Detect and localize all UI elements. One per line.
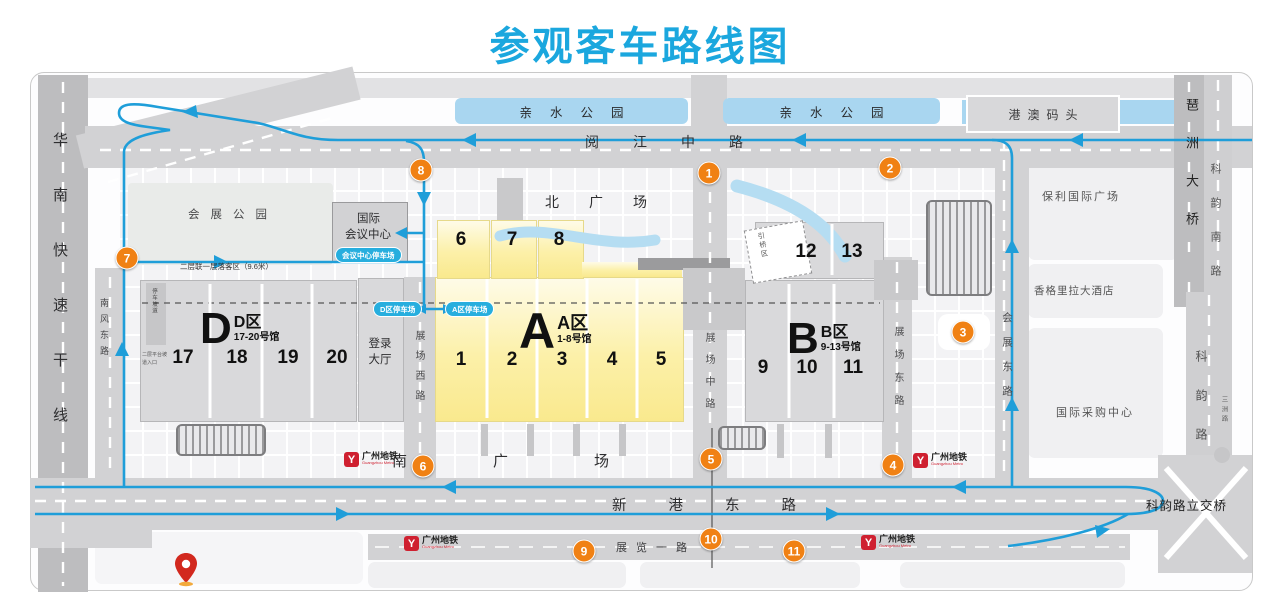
road-label-zhanchang-east: 展场东路	[890, 326, 905, 418]
road-label-zhanlan-yi: 展览一路	[616, 539, 696, 555]
road-label-nanfeng-east: 南风东路	[98, 298, 111, 362]
metro-logo-4: Y 广州地铁Guangzhou Metro	[861, 535, 915, 550]
qinshui-park-label-2: 亲水公园	[779, 102, 901, 121]
place-label-poly-plaza: 保利国际广场	[1042, 188, 1120, 204]
south-stub-6	[825, 424, 832, 458]
b-east-arm	[874, 260, 918, 300]
guangzhou-metro-icon: Y	[404, 536, 419, 551]
zone-label-b: B B区 9-13号馆	[787, 320, 861, 357]
route-marker-9: 9	[573, 540, 596, 563]
place-label-south-plaza: 南广场	[392, 450, 695, 471]
hall-2: 2	[507, 349, 518, 371]
route-marker-5: 5	[700, 448, 723, 471]
road-label-huizhan-east: 会展东路	[1000, 312, 1015, 410]
ramp-bar-label: 停车坡道	[150, 288, 158, 314]
metro-logo-3: Y 广州地铁Guangzhou Metro	[404, 536, 458, 551]
south-block-1	[368, 562, 626, 588]
road-label-xingang: 新港东路	[612, 494, 838, 515]
route-marker-6: 6	[412, 455, 435, 478]
conference-parking-pill: 会议中心停车场	[336, 248, 401, 262]
zone-d-range: 17-20号馆	[234, 332, 280, 343]
southwest-road-stub	[30, 528, 152, 548]
zone-a-name: A区	[557, 314, 591, 334]
hall-11: 11	[843, 357, 863, 379]
waterfront-strip-1: 亲水公园	[455, 98, 688, 124]
bus-park-west	[176, 424, 266, 456]
login-hall-label: 登录大厅	[365, 336, 395, 368]
hall-19: 19	[277, 347, 298, 369]
metro-logo-2: Y 广州地铁Guangzhou Metro	[913, 453, 967, 468]
poly-plaza-block	[1028, 163, 1178, 260]
route-marker-10: 10	[700, 528, 723, 551]
hall-10: 10	[796, 357, 817, 379]
hall-5: 5	[656, 349, 667, 371]
hall-8: 8	[554, 229, 565, 251]
gangao-pier-box: 港澳码头	[966, 95, 1120, 133]
waterfront-strip-2: 亲水公园	[723, 98, 940, 124]
qinshui-park-label-1: 亲水公园	[519, 102, 641, 121]
route-marker-3: 3	[952, 321, 975, 344]
hall-1: 1	[456, 349, 467, 371]
central-connector	[683, 268, 745, 330]
road-label-pazhou-bridge: 琶洲大桥	[1182, 98, 1201, 250]
hall-9: 9	[758, 357, 769, 379]
sourcing-center-block	[1028, 328, 1163, 458]
conference-center-label-1: 国际	[357, 210, 380, 226]
bus-park-east	[926, 200, 992, 296]
road-label-keyun: 科韵路	[1193, 350, 1210, 467]
ramp-small-label: 二层平台坡道入口	[142, 352, 170, 367]
a-zone-parking-pill: A区停车场	[446, 302, 493, 316]
south-stub-5	[777, 424, 784, 458]
route-marker-7: 7	[116, 247, 139, 270]
place-label-north-plaza: 北广场	[545, 192, 677, 212]
road-label-keyun-south: 科韵南路	[1207, 163, 1223, 299]
huizhan-park-block	[128, 183, 333, 265]
zone-d-name: D区	[234, 314, 280, 332]
place-label-sourcing-center: 国际采购中心	[1056, 404, 1134, 420]
conference-center-label-2: 会议中心	[345, 226, 391, 242]
zone-a-letter: A	[519, 310, 555, 353]
place-label-shangrila: 香格里拉大酒店	[1034, 283, 1115, 298]
metro-logo-1: Y 广州地铁Guangzhou Metro	[344, 452, 398, 467]
zone-label-a: A A区 1-8号馆	[519, 310, 592, 353]
hall-4: 4	[607, 349, 618, 371]
hall-18: 18	[226, 347, 247, 369]
route-marker-8: 8	[410, 159, 433, 182]
zhanlan-yi-road	[368, 534, 1130, 560]
guangzhou-metro-icon: Y	[344, 452, 359, 467]
page-title: 参观客车路线图	[0, 14, 1280, 72]
zone-b-letter: B	[787, 320, 819, 357]
road-label-yuejiang: 阅江中路	[585, 132, 777, 152]
route-marker-2: 2	[879, 157, 902, 180]
route-marker-4: 4	[882, 454, 905, 477]
place-label-huizhan-park: 会展公园	[188, 206, 278, 222]
hall-20: 20	[326, 347, 347, 369]
d-zone-parking-pill: D区停车场	[374, 302, 421, 316]
south-block-3	[900, 562, 1125, 588]
south-block-2	[640, 562, 860, 588]
metro-label-en: Guangzhou Metro	[422, 545, 458, 549]
hall-12: 12	[795, 241, 816, 263]
zone-d-letter: D	[200, 310, 232, 347]
hall-17: 17	[172, 347, 193, 369]
road-label-huanan-expressway: 华南快速干线	[49, 132, 70, 462]
metro-label-en: Guangzhou Metro	[362, 461, 398, 465]
bus-park-center	[718, 426, 766, 450]
route-marker-1: 1	[698, 162, 721, 185]
zone-label-d: D D区 17-20号馆	[200, 310, 279, 347]
zone-b-name: B区	[821, 324, 861, 342]
road-label-sanzhou: 三洲路	[1218, 396, 1228, 425]
zhanchang-middle-north-stub	[691, 75, 727, 128]
guangzhou-metro-icon: Y	[913, 453, 928, 468]
zone-b-range: 9-13号馆	[821, 342, 861, 353]
metro-label-en: Guangzhou Metro	[879, 544, 915, 548]
deck-note-label: 二层联一层落客区（9.6米）	[180, 261, 273, 272]
route-marker-11: 11	[783, 540, 806, 563]
huizhan-east-road	[995, 132, 1029, 482]
gangao-pier-label: 港澳码头	[1008, 106, 1084, 123]
road-label-keyun-interchange: 科韵路立交桥	[1146, 495, 1227, 514]
hall-6: 6	[456, 229, 467, 251]
road-label-zhanchang-middle: 展场中路	[701, 332, 716, 420]
road-label-zhanchang-west: 展场西路	[411, 330, 426, 410]
hall-13: 13	[841, 241, 862, 263]
keyun-interchange-area	[1158, 455, 1252, 573]
guangzhou-metro-icon: Y	[861, 535, 876, 550]
hall-3: 3	[557, 349, 568, 371]
hall-7: 7	[507, 229, 518, 251]
metro-label-en: Guangzhou Metro	[931, 462, 967, 466]
zone-a-range: 1-8号馆	[557, 334, 591, 345]
